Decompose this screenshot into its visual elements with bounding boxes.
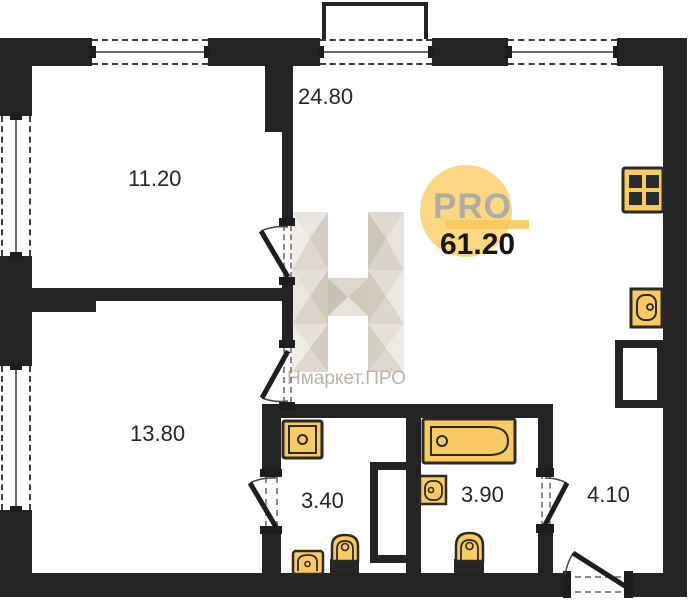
room-label-living: 24.80 — [298, 84, 353, 110]
entrance-door — [565, 553, 628, 588]
door-room-upper — [261, 227, 288, 277]
toilet-icon — [454, 533, 484, 574]
hand-sink-icon — [293, 551, 323, 574]
room-label-bathroom: 3.90 — [461, 482, 504, 508]
toilet-icon — [330, 535, 359, 574]
wall-sink-icon — [420, 476, 446, 504]
washing-machine-icon — [283, 421, 322, 458]
room-label-room-upper: 11.20 — [128, 166, 181, 192]
room-label-room-lower: 13.80 — [130, 421, 185, 447]
bathtub-icon — [423, 419, 515, 463]
door-bathroom — [545, 478, 567, 525]
door-wc-small — [250, 478, 276, 527]
stove-icon — [623, 168, 663, 212]
kitchen-sink-icon — [631, 289, 662, 327]
door-room-lower — [262, 351, 288, 401]
room-label-wc-small: 3.40 — [301, 488, 344, 514]
room-label-hallway: 4.10 — [587, 482, 630, 508]
floor-plan: Нмаркет.ПРО PRO 61.20 — [0, 0, 691, 600]
